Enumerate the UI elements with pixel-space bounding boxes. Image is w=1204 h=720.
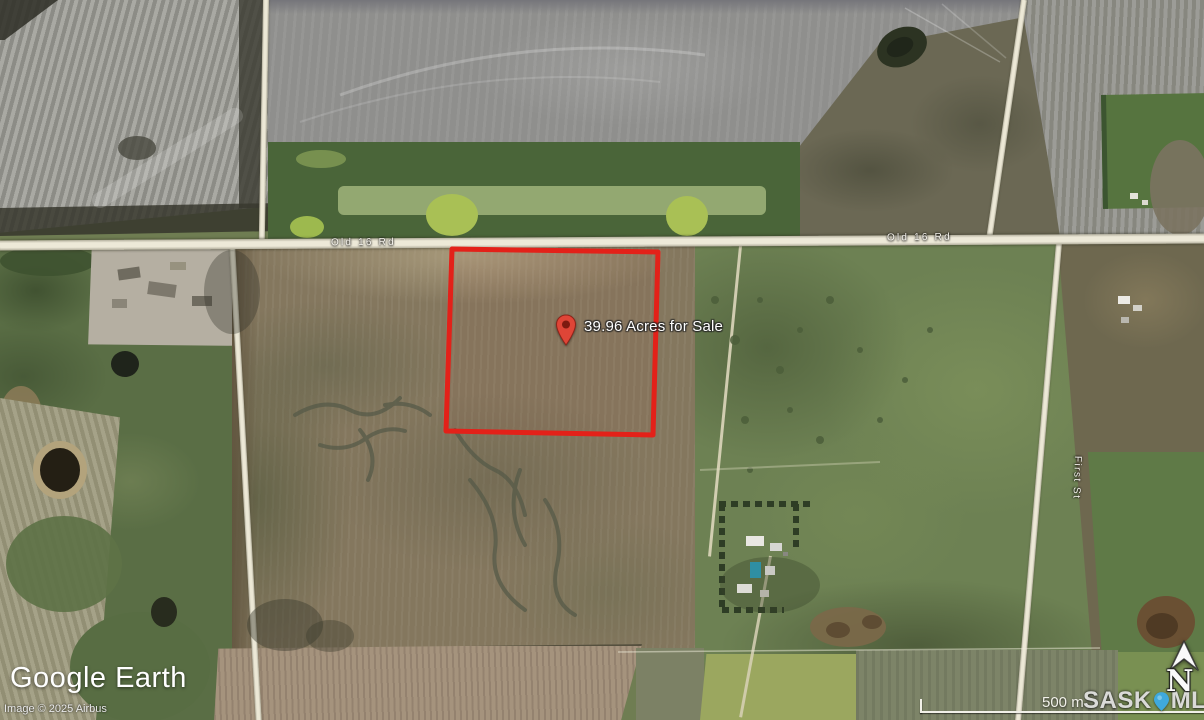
google-earth-logo: Google Earth — [10, 662, 187, 695]
parcel-outline[interactable] — [0, 0, 1204, 720]
scale-label: 500 m — [1042, 694, 1084, 711]
imagery-copyright: Image © 2025 Airbus — [4, 703, 107, 715]
location-pin-icon[interactable] — [555, 314, 577, 347]
google-earth-map-canvas[interactable]: Old 16 Rd Old 16 Rd First St 39.96 Acres… — [0, 0, 1204, 720]
north-label: N — [1166, 664, 1193, 699]
parcel-label: 39.96 Acres for Sale — [584, 318, 723, 335]
watermark-sask-text: SASK — [1083, 687, 1152, 715]
